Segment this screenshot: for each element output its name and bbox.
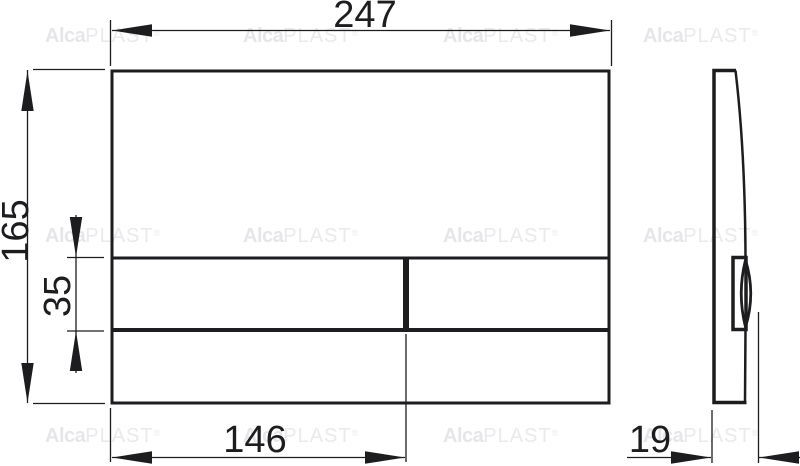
dimension-split-146: 146 (111, 334, 407, 464)
arrowhead-right (365, 451, 405, 463)
technical-drawing-canvas: AlcaPLAST® AlcaPLAST® AlcaPLAST® AlcaPLA… (0, 0, 800, 466)
side-profile-outline (714, 71, 747, 403)
arrowhead-right (570, 24, 610, 36)
side-face-lower (745, 330, 746, 402)
split-dimension-label: 146 (223, 419, 286, 461)
dimension-height-165: 165 (0, 70, 105, 404)
side-view-profile (714, 71, 751, 403)
button-row-dimension-label: 35 (37, 275, 79, 317)
width-dimension-label: 247 (333, 0, 396, 36)
arrowhead-left (112, 24, 152, 36)
front-view-plate (112, 71, 609, 403)
arrowhead-up (70, 331, 82, 371)
dimension-width-247: 247 (111, 0, 612, 66)
arrowhead-top (21, 71, 33, 111)
arrowhead-left (112, 451, 152, 463)
depth-dimension-label: 19 (629, 419, 671, 461)
arrowhead-right-pointing (671, 451, 711, 463)
height-dimension-label: 165 (0, 199, 37, 262)
side-face-upper (736, 71, 746, 257)
arrowhead-left-pointing (759, 451, 799, 463)
dimension-button-row-35: 35 (37, 215, 104, 373)
plate-outline (112, 71, 609, 403)
arrowhead-down (70, 217, 82, 257)
drawing-svg: 247 165 35 146 (0, 0, 800, 466)
arrowhead-bottom (21, 363, 33, 403)
